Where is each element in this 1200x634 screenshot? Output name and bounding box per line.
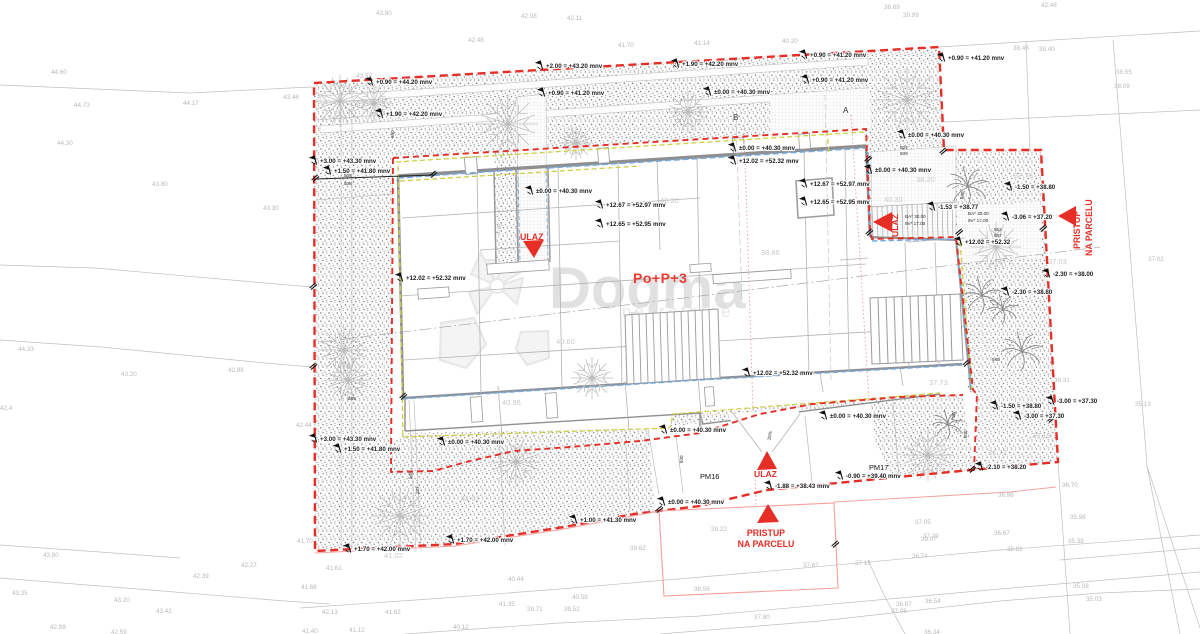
svg-text:37.75: 37.75 (1014, 171, 1033, 180)
svg-text:PRISTUP: PRISTUP (747, 528, 785, 538)
svg-text:43.80: 43.80 (152, 181, 168, 188)
svg-text:40.58: 40.58 (572, 594, 588, 601)
svg-text:-0.90 = +39.40 mnv: -0.90 = +39.40 mnv (846, 473, 901, 480)
svg-text:-3.06 = +37.20: -3.06 = +37.20 (1012, 214, 1053, 221)
svg-text:41.68: 41.68 (301, 584, 317, 591)
svg-text:43.30: 43.30 (263, 205, 279, 212)
svg-text:±0.00 = +40.30 mnv: ±0.00 = +40.30 mnv (536, 188, 593, 195)
svg-text:42.48: 42.48 (1041, 2, 1057, 9)
svg-text:±0.00 = +40.30 mnv: ±0.00 = +40.30 mnv (739, 145, 796, 152)
svg-text:509: 509 (900, 151, 908, 156)
svg-text:40.12: 40.12 (453, 624, 469, 631)
svg-text:+1.00 = +41.30 mnv: +1.00 = +41.30 mnv (580, 517, 637, 524)
svg-text:690: 690 (390, 130, 395, 138)
svg-text:-1.53 = +38.77: -1.53 = +38.77 (938, 204, 979, 211)
svg-text:43.52: 43.52 (356, 73, 372, 80)
svg-text:41.70: 41.70 (297, 538, 313, 545)
svg-text:40.30: 40.30 (660, 196, 679, 205)
svg-text:NA PARCELU: NA PARCELU (738, 539, 795, 549)
svg-text:37.80: 37.80 (754, 614, 770, 621)
svg-text:35.08: 35.08 (1073, 583, 1089, 590)
svg-text:PM16: PM16 (700, 472, 719, 481)
svg-text:43.80: 43.80 (43, 552, 59, 559)
svg-text:44.73: 44.73 (74, 102, 90, 109)
svg-text:36.70: 36.70 (1062, 482, 1078, 489)
svg-text:37.29: 37.29 (923, 533, 939, 540)
svg-text:35.38: 35.38 (1068, 538, 1084, 545)
svg-text:38.20: 38.20 (916, 175, 935, 184)
svg-text:BA* 30.00: BA* 30.00 (905, 214, 926, 219)
svg-text:PM17: PM17 (869, 463, 888, 472)
svg-text:42.13: 42.13 (322, 609, 338, 616)
svg-text:44.33: 44.33 (18, 346, 34, 353)
svg-text:-1.50 = +38.80: -1.50 = +38.80 (1001, 403, 1042, 410)
svg-text:+12.02 = +52.32 mnv: +12.02 = +52.32 mnv (753, 370, 813, 377)
svg-text:BA* 30.00: BA* 30.00 (968, 211, 989, 216)
svg-text:43.46: 43.46 (283, 94, 299, 101)
svg-text:227: 227 (415, 486, 420, 494)
svg-text:35.03: 35.03 (1086, 596, 1102, 603)
svg-text:±0.00 = +40.30 mnv: ±0.00 = +40.30 mnv (668, 499, 725, 506)
svg-text:557: 557 (994, 233, 1002, 238)
svg-text:43.20: 43.20 (114, 597, 130, 604)
svg-text:37.15: 37.15 (855, 560, 871, 567)
svg-text:+1.90 = +42.20 mnv: +1.90 = +42.20 mnv (682, 61, 739, 68)
svg-text:37.02: 37.02 (1148, 256, 1164, 263)
svg-text:600: 600 (679, 455, 684, 463)
svg-text:41.14: 41.14 (694, 40, 710, 47)
svg-text:44.17: 44.17 (183, 100, 199, 107)
svg-text:PRISTUP: PRISTUP (1072, 211, 1082, 249)
svg-text:38.09: 38.09 (1114, 83, 1130, 90)
svg-text:43.80: 43.80 (376, 10, 392, 17)
svg-text:+3.00 = +43.30 mnv: +3.00 = +43.30 mnv (320, 436, 377, 443)
svg-text:40.60: 40.60 (556, 337, 575, 346)
svg-text:+3.00 = +43.30 mnv: +3.00 = +43.30 mnv (320, 158, 377, 165)
svg-text:43.20: 43.20 (121, 371, 137, 378)
svg-text:700: 700 (951, 412, 957, 421)
svg-text:38.40: 38.40 (1039, 46, 1055, 53)
svg-text:41.01: 41.01 (461, 494, 480, 503)
svg-text:35.96: 35.96 (1070, 514, 1086, 521)
svg-text:ULAZ: ULAZ (520, 232, 544, 242)
svg-text:42.88: 42.88 (228, 367, 244, 374)
svg-text:600: 600 (960, 191, 966, 200)
svg-text:42.99: 42.99 (50, 624, 66, 631)
svg-text:9V* 17.00: 9V* 17.00 (905, 221, 926, 226)
svg-text:44.30: 44.30 (57, 140, 73, 147)
svg-text:40.30: 40.30 (884, 195, 903, 204)
svg-text:552: 552 (994, 227, 1002, 232)
svg-text:±0.00 = +40.30 mnv: ±0.00 = +40.30 mnv (670, 427, 727, 434)
svg-text:+1.50 = +41.80 mnv: +1.50 = +41.80 mnv (344, 446, 401, 453)
svg-text:38.46: 38.46 (1013, 45, 1029, 52)
svg-text:±0.00 = +40.30 mnv: ±0.00 = +40.30 mnv (908, 132, 965, 139)
svg-text:36.54: 36.54 (925, 598, 941, 605)
svg-text:42.11: 42.11 (567, 15, 583, 22)
svg-text:43.35: 43.35 (12, 590, 28, 597)
svg-text:+12.02 = +52.32 mnv: +12.02 = +52.32 mnv (406, 275, 466, 282)
svg-text:Po+P+3: Po+P+3 (633, 270, 687, 286)
svg-text:36.87: 36.87 (896, 601, 912, 608)
svg-text:A: A (843, 106, 849, 115)
svg-text:+1.70 = +42.00 mnv: +1.70 = +42.00 mnv (457, 537, 514, 544)
svg-text:38.86: 38.86 (761, 248, 780, 257)
svg-text:-3.00 = +37.30: -3.00 = +37.30 (1024, 413, 1065, 420)
svg-text:+12.02 = +52.32: +12.02 = +52.32 (965, 239, 1011, 246)
svg-text:42.48: 42.48 (468, 37, 484, 44)
svg-text:43.42: 43.42 (156, 608, 172, 615)
svg-text:35.82: 35.82 (1007, 546, 1023, 553)
svg-text:37.73: 37.73 (929, 378, 948, 387)
svg-text:42.4: 42.4 (0, 405, 13, 412)
svg-text:+2.00 = +43.20 mnv: +2.00 = +43.20 mnv (546, 63, 603, 70)
svg-text:36.31: 36.31 (1054, 377, 1070, 384)
svg-text:+0.90 = +41.20 mnv: +0.90 = +41.20 mnv (548, 90, 605, 97)
svg-text:37.62: 37.62 (803, 562, 819, 569)
svg-text:+0.90 = +44.20 mnv: +0.90 = +44.20 mnv (376, 79, 433, 86)
svg-text:41.40: 41.40 (302, 628, 318, 634)
svg-text:-1.50 = +38.80: -1.50 = +38.80 (1015, 184, 1056, 191)
svg-text:39.22: 39.22 (711, 526, 727, 533)
svg-text:+12.02 = +52.32 mnv: +12.02 = +52.32 mnv (739, 158, 799, 165)
svg-text:41.70: 41.70 (618, 42, 634, 49)
svg-text:+12.65 = +52.95 mnv: +12.65 = +52.95 mnv (606, 221, 666, 228)
svg-text:39.62: 39.62 (630, 545, 646, 552)
svg-text:35.13: 35.13 (1135, 401, 1151, 408)
svg-text:36.72: 36.72 (988, 448, 1007, 457)
svg-text:41.02: 41.02 (384, 551, 403, 560)
svg-text:B: B (733, 113, 738, 122)
svg-text:+12.67 = +52.97 mnv: +12.67 = +52.97 mnv (810, 181, 870, 188)
svg-text:41.61: 41.61 (326, 565, 342, 572)
svg-text:41.62: 41.62 (385, 609, 401, 616)
svg-text:36.19: 36.19 (1032, 431, 1051, 440)
svg-text:+0.90 = +41.20 mnv: +0.90 = +41.20 mnv (810, 52, 867, 59)
svg-text:±0.00 = +40.30 mnv: ±0.00 = +40.30 mnv (875, 167, 932, 174)
svg-text:39.52: 39.52 (564, 606, 580, 613)
svg-text:41.35: 41.35 (499, 601, 515, 608)
svg-text:ULAZ: ULAZ (890, 214, 900, 237)
svg-text:36.96: 36.96 (998, 492, 1014, 499)
svg-text:-2.30 = +38.80: -2.30 = +38.80 (1012, 289, 1053, 296)
svg-text:-2.30 = +38.00: -2.30 = +38.00 (1053, 271, 1094, 278)
svg-text:-2.10 = +38.20: -2.10 = +38.20 (986, 464, 1027, 471)
svg-text:±0.00 = +40.30 mnv: ±0.00 = +40.30 mnv (830, 413, 887, 420)
svg-text:42.44: 42.44 (296, 422, 312, 429)
svg-text:+1.90 = +42.20 mnv: +1.90 = +42.20 mnv (386, 111, 443, 118)
svg-text:40.44: 40.44 (508, 576, 524, 583)
svg-text:41.12: 41.12 (349, 627, 365, 634)
svg-text:NA PARCELU: NA PARCELU (1084, 199, 1094, 256)
svg-text:545: 545 (408, 471, 413, 479)
svg-text:40.96: 40.96 (502, 398, 521, 407)
svg-text:37.08: 37.08 (891, 608, 907, 615)
svg-text:39.71: 39.71 (527, 606, 543, 613)
svg-text:+12.65 = +52.95 mnv: +12.65 = +52.95 mnv (810, 199, 870, 206)
svg-text:ULAZ: ULAZ (754, 469, 777, 479)
svg-text:+1.50 = +41.80 mnv: +1.50 = +41.80 mnv (334, 168, 391, 175)
svg-text:39.99: 39.99 (903, 12, 919, 19)
svg-text:800: 800 (963, 430, 969, 439)
svg-text:503: 503 (344, 173, 352, 178)
svg-text:±0.00 = +40.30 mnv: ±0.00 = +40.30 mnv (714, 89, 771, 96)
svg-text:38.59: 38.59 (694, 586, 710, 593)
svg-text:44.60: 44.60 (51, 69, 67, 76)
svg-text:36.34: 36.34 (924, 629, 940, 634)
svg-text:504: 504 (900, 145, 908, 150)
svg-text:508: 508 (344, 181, 352, 186)
svg-text:38.55: 38.55 (1116, 69, 1132, 76)
svg-text:42.39: 42.39 (193, 573, 209, 580)
svg-text:+0.90 = +41.20 mnv: +0.90 = +41.20 mnv (948, 55, 1005, 62)
svg-text:40.20: 40.20 (782, 38, 798, 45)
svg-text:548: 548 (992, 357, 1000, 362)
svg-text:-1.88 = +38.43 mnv: -1.88 = +38.43 mnv (775, 483, 830, 490)
svg-text:36.74: 36.74 (912, 553, 928, 560)
svg-text:42.59: 42.59 (111, 629, 127, 634)
svg-text:42.08: 42.08 (521, 13, 537, 20)
svg-text:38.69: 38.69 (884, 4, 900, 11)
svg-text:36.67: 36.67 (994, 530, 1010, 537)
svg-text:-3.00 = +37.30: -3.00 = +37.30 (1057, 398, 1098, 405)
svg-text:37.03: 37.03 (1048, 257, 1067, 266)
svg-text:±0.00 = +40.30 mnv: ±0.00 = +40.30 mnv (448, 439, 505, 446)
svg-text:+12.67 = +52.97 mnv: +12.67 = +52.97 mnv (606, 202, 666, 209)
svg-text:42.27: 42.27 (241, 562, 257, 569)
svg-text:+0.90 = +41.20 mnv: +0.90 = +41.20 mnv (812, 77, 869, 84)
svg-text:37.05: 37.05 (915, 519, 931, 526)
svg-text:689: 689 (348, 396, 356, 401)
svg-text:9V* 17.00: 9V* 17.00 (968, 218, 989, 223)
